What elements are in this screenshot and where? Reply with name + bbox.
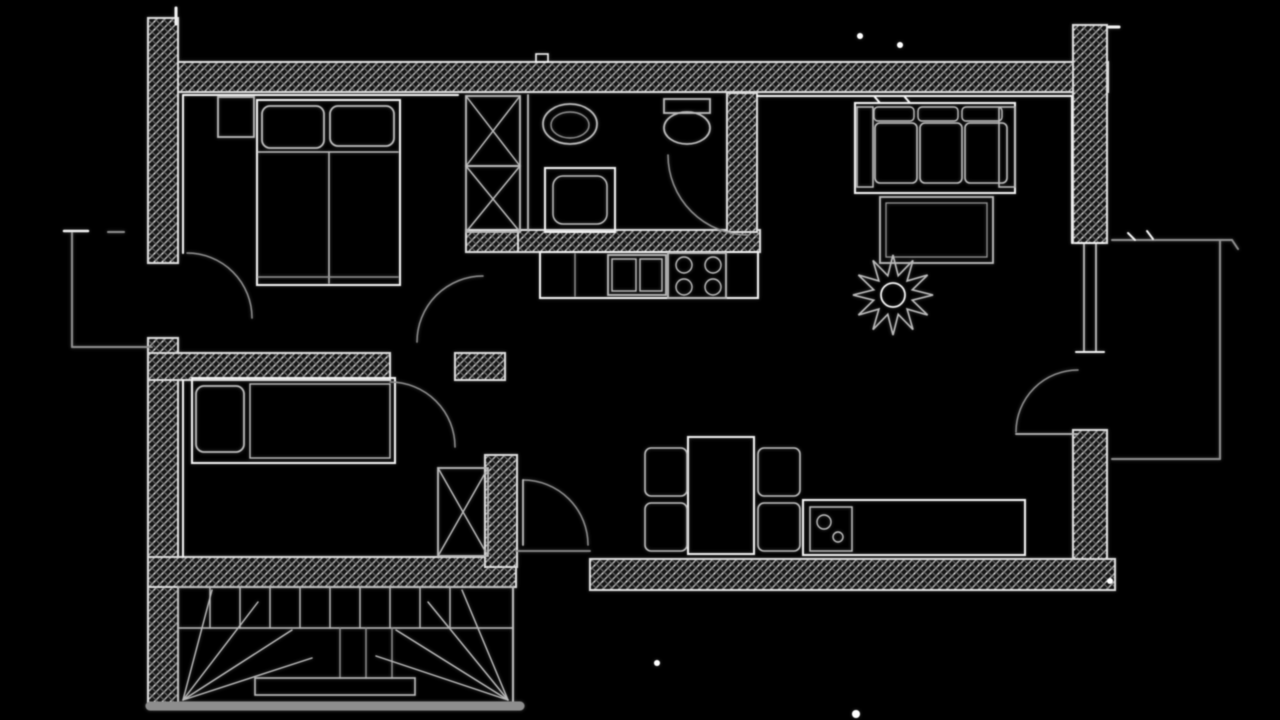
coffee-table: [880, 197, 993, 263]
single-bed-frame: [192, 378, 395, 463]
dining-chair-3: [758, 448, 800, 496]
sideboard-plant-2: [833, 532, 843, 542]
sofa-cushion-3: [965, 123, 1007, 183]
sofa-back-pillow-3: [962, 107, 1002, 121]
dining-chair-4: [758, 503, 800, 551]
screenshot-root: { "canvas": { "width": 1280, "height": 7…: [0, 0, 1280, 720]
dining-chair-1: [645, 448, 687, 496]
balcony-right-tick-1: [1128, 233, 1135, 240]
stove-burner-1: [676, 257, 692, 273]
noise-dot-1: [857, 33, 863, 39]
left-wall-lower: [148, 338, 178, 706]
bath-living-wall: [727, 93, 757, 232]
stove-burner-3: [676, 279, 692, 295]
stair-winder-right-2: [428, 602, 508, 700]
coffee-table-inner: [886, 203, 987, 257]
dining-chair-2: [645, 503, 687, 551]
right-wall-upper: [1073, 25, 1107, 243]
noise-dot-5: [1107, 578, 1113, 584]
sideboard-box: [810, 507, 852, 551]
stair-winder-left-2: [183, 602, 258, 700]
double-bed-pillow-left: [262, 106, 324, 148]
sofa-cushion-1: [875, 123, 917, 183]
nightstand: [218, 97, 254, 137]
kitchen-sink: [608, 255, 666, 295]
single-bed-mattress: [250, 384, 390, 458]
sofa-back-pillow-2: [918, 107, 958, 121]
toilet-bowl: [664, 112, 710, 144]
double-bed-pillow-right: [330, 106, 394, 146]
kitchen-sink-bowl-left: [612, 259, 636, 291]
kitchen-divider-wall: [518, 230, 760, 252]
stair-winder-right-1: [462, 590, 508, 700]
balcony-door-arc-right: [1016, 370, 1078, 432]
floor-plan: [0, 0, 1280, 720]
sideboard: [803, 500, 1025, 555]
stair-door-arc: [523, 480, 588, 545]
mid-wall-left: [148, 353, 390, 380]
stove-burner-4: [705, 279, 721, 295]
bedroom2-right-wall: [485, 455, 517, 567]
living-sill-tick-2: [904, 96, 910, 103]
stove-burner-2: [705, 257, 721, 273]
bottom-wall-right: [590, 559, 1115, 590]
mid-wall-right: [455, 353, 505, 380]
plant-leaves: [853, 255, 933, 335]
single-bed-pillow: [196, 386, 244, 452]
stair-winder-right-3: [396, 630, 508, 700]
left-wall-upper: [148, 18, 178, 263]
noise-dot-4: [852, 710, 860, 718]
shower-tray: [545, 168, 615, 232]
shower-tray-inner: [553, 176, 607, 224]
noise-dot-3: [654, 660, 660, 666]
noise-dot-2: [897, 42, 903, 48]
plan-layer: [64, 8, 1238, 718]
plant-pot: [881, 283, 905, 307]
sideboard-plant-1: [817, 515, 831, 529]
sofa-arm-left: [857, 107, 873, 187]
kitchen-sink-bowl-right: [640, 259, 662, 291]
closet-base-wall: [466, 230, 520, 252]
balcony-door-arc-left: [187, 253, 252, 318]
sofa-back-pillow-1: [874, 107, 914, 121]
sofa-frame: [855, 103, 1015, 193]
washbasin-inner: [551, 112, 589, 138]
dining-table: [688, 437, 754, 554]
balcony-right-tick-2: [1147, 231, 1153, 239]
bottom-wall-left: [148, 557, 516, 587]
balcony-right-hook: [1232, 240, 1238, 249]
floor-plan-stage: [0, 0, 1280, 720]
stair-landing: [255, 678, 415, 695]
top-wall-tick: [536, 54, 548, 62]
bedroom2-door-arc: [390, 382, 455, 447]
sofa-cushion-2: [920, 123, 962, 183]
bedroom1-door-arc: [417, 276, 483, 342]
stair-winder-left-4: [183, 658, 312, 700]
toilet-tank: [664, 99, 710, 113]
top-wall: [158, 62, 1108, 92]
living-sill-tick-1: [874, 96, 880, 103]
